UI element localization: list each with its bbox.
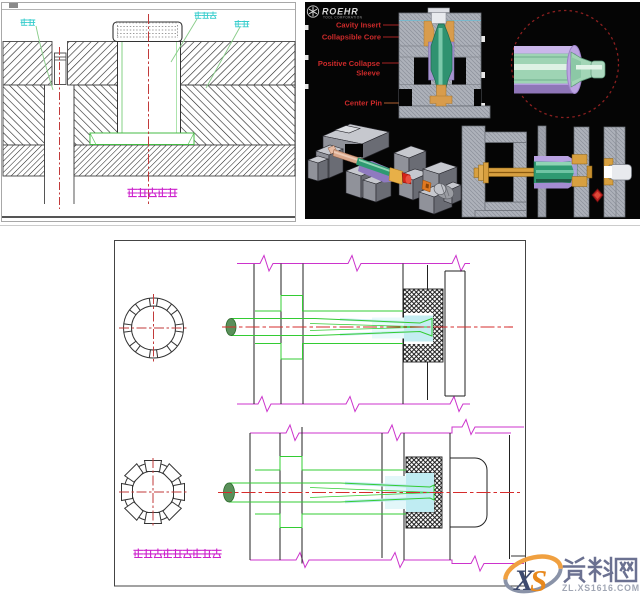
svg-text:S: S (530, 563, 547, 598)
svg-text:TOOL CORPORATION: TOOL CORPORATION (323, 16, 363, 20)
svg-text:Positive Collapse: Positive Collapse (318, 59, 380, 68)
svg-text:Center Pin: Center Pin (344, 99, 382, 108)
svg-text:ZL.XS1616.COM: ZL.XS1616.COM (562, 583, 640, 593)
svg-text:Sleeve: Sleeve (356, 69, 380, 78)
svg-text:Collapsible Core: Collapsible Core (322, 33, 381, 42)
svg-text:Cavity Insert: Cavity Insert (336, 21, 382, 30)
